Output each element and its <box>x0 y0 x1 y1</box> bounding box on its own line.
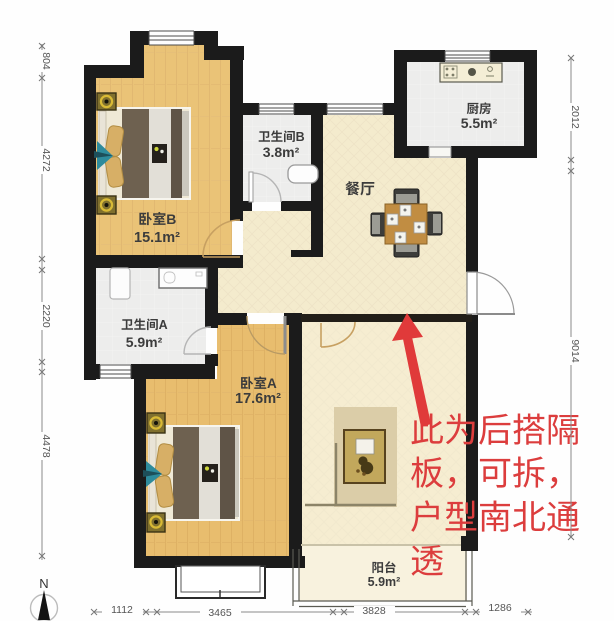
svg-text:3.8m²: 3.8m² <box>263 144 300 160</box>
svg-text:B: B <box>296 130 305 144</box>
svg-text:4272: 4272 <box>40 148 52 172</box>
svg-text:2220: 2220 <box>40 304 52 328</box>
svg-text:3465: 3465 <box>208 607 232 619</box>
svg-text:N: N <box>39 576 48 591</box>
svg-text:A: A <box>159 318 168 332</box>
svg-text:15.1m²: 15.1m² <box>134 230 180 246</box>
svg-text:5.9m²: 5.9m² <box>368 575 401 589</box>
svg-text:1112: 1112 <box>111 604 133 616</box>
svg-text:5.9m²: 5.9m² <box>126 334 163 350</box>
svg-text:804: 804 <box>40 52 52 70</box>
svg-text:3828: 3828 <box>362 605 386 617</box>
svg-text:A: A <box>267 376 277 391</box>
svg-text:9014: 9014 <box>569 339 581 363</box>
svg-text:1286: 1286 <box>488 602 512 614</box>
svg-text:4478: 4478 <box>40 434 52 458</box>
svg-text:B: B <box>166 211 176 227</box>
svg-text:2012: 2012 <box>569 105 581 129</box>
svg-text:5.5m²: 5.5m² <box>461 115 498 131</box>
svg-text:17.6m²: 17.6m² <box>235 391 281 407</box>
